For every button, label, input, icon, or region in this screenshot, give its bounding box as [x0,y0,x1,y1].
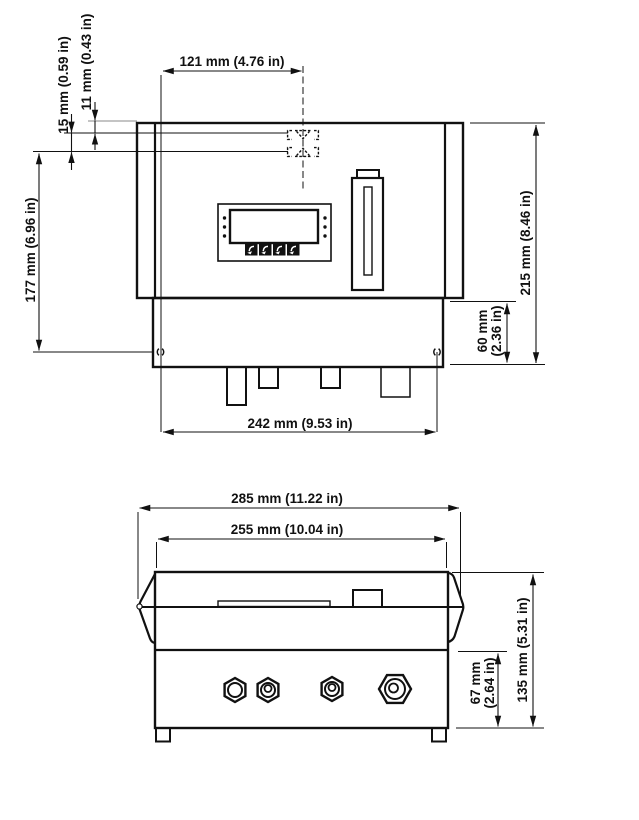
hex-fitting-4 [379,675,411,703]
panel-button-2 [259,243,272,256]
hex-fittings [225,675,411,703]
dim-label-overall-width: 285 mm (11.22 in) [231,491,343,506]
flow-meter-cap [357,170,379,178]
flow-meter-tube [364,187,372,275]
vent-slot [218,601,330,607]
hex-fitting-1 [225,678,246,702]
panel-button-3 [273,243,286,256]
dim-label-mounting-width: 242 mm (9.53 in) [247,416,352,431]
dim-label-body-width: 255 mm (10.04 in) [231,522,344,537]
panel-button-4 [287,243,300,256]
base-chassis [153,298,443,367]
left-wing-hole [137,604,142,609]
panel-button-1 [245,243,258,256]
hex-fitting-2 [258,678,279,702]
dim-label-keyhole-slot-length: 15 mm (0.59 in) [56,36,71,134]
hex-fitting-3 [322,677,343,701]
dim-label-keyhole-top-offset: 11 mm (0.43 in) [79,14,94,111]
flow-meter-body [352,178,383,290]
dim-label-lower-height-1: 67 mm [468,662,483,705]
dimension-drawing: 121 mm (4.76 in) 11 mm (0.43 in) 15 mm (… [0,0,639,820]
display-screen [230,210,318,243]
left-foot [156,728,170,742]
dim-label-overall-height: 215 mm (8.46 in) [518,190,533,295]
bottom-view: 285 mm (11.22 in) 255 mm (10.04 in) 67 m… [137,491,544,742]
display-panel [218,204,331,261]
dim-label-overall-depth: 135 mm (5.31 in) [515,597,530,702]
dim-label-panel-width: 121 mm (4.76 in) [179,54,284,69]
drawing-page: 121 mm (4.76 in) 11 mm (0.43 in) 15 mm (… [0,0,639,820]
panel-screw-dots [223,216,327,237]
dim-label-base-height-1: 60 mm [475,310,490,353]
dim-label-base-height-2: (2.36 in) [489,305,504,356]
front-view: 121 mm (4.76 in) 11 mm (0.43 in) 15 mm (… [23,14,545,432]
dim-label-lower-height-2: (2.64 in) [482,657,497,708]
bottom-protrusions [227,367,410,405]
top-boss [353,590,382,607]
dim-label-mounting-height: 177 mm (6.96 in) [23,197,38,302]
flow-meter [352,170,383,290]
panel-buttons [245,243,300,256]
right-foot [432,728,446,742]
